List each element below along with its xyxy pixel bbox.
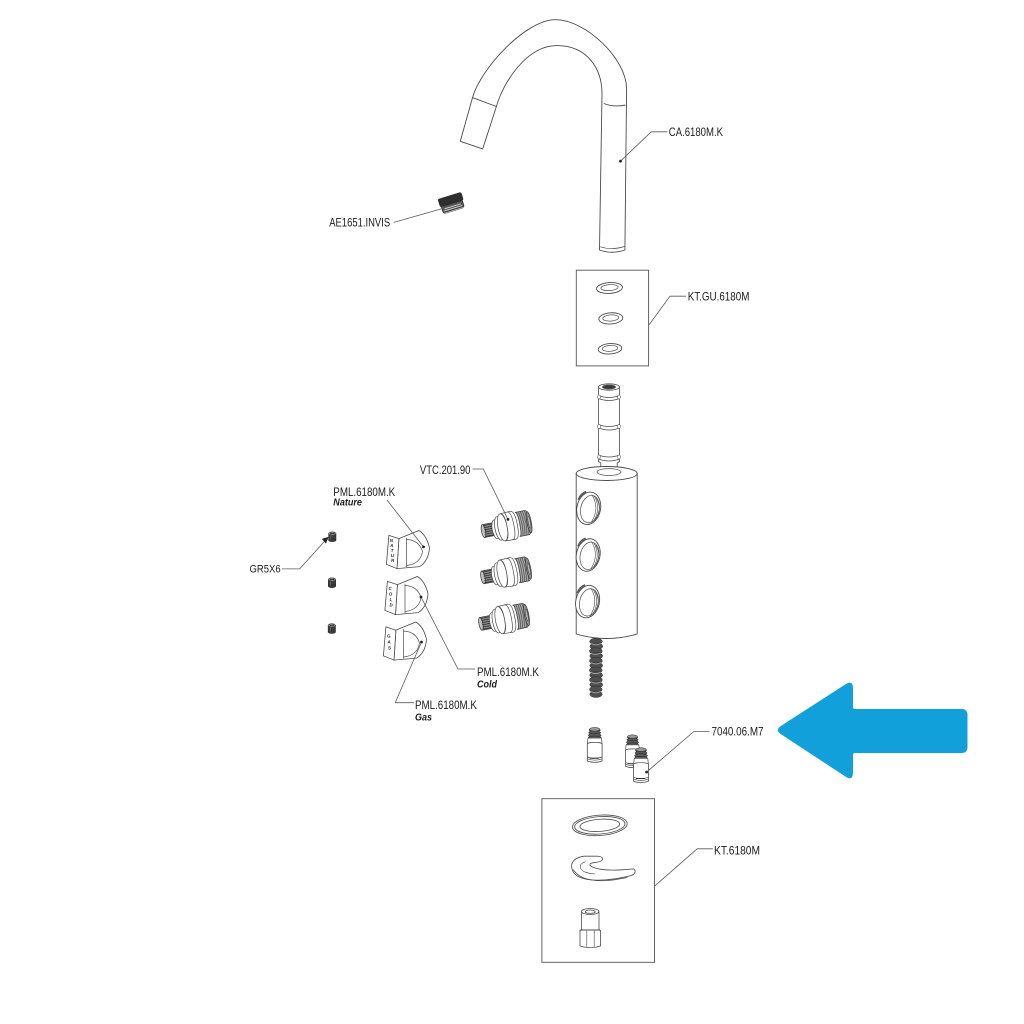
svg-text:VTC.201.90: VTC.201.90 <box>420 464 471 477</box>
svg-text:GR5X6: GR5X6 <box>250 564 281 576</box>
svg-text:PML.6180M.K: PML.6180M.K <box>477 666 539 679</box>
svg-text:Gas: Gas <box>415 713 432 724</box>
svg-text:7040.06.M7: 7040.06.M7 <box>712 725 764 738</box>
svg-text:PML.6180M.K: PML.6180M.K <box>415 699 477 712</box>
svg-text:KT.GU.6180M: KT.GU.6180M <box>688 291 750 304</box>
svg-text:Cold: Cold <box>477 680 498 691</box>
svg-text:KT.6180M: KT.6180M <box>714 844 760 857</box>
svg-text:AE1651.INVIS: AE1651.INVIS <box>329 217 390 230</box>
svg-text:Nature: Nature <box>333 498 362 509</box>
svg-text:CA.6180M.K: CA.6180M.K <box>669 126 723 139</box>
svg-text:D: D <box>389 602 393 607</box>
